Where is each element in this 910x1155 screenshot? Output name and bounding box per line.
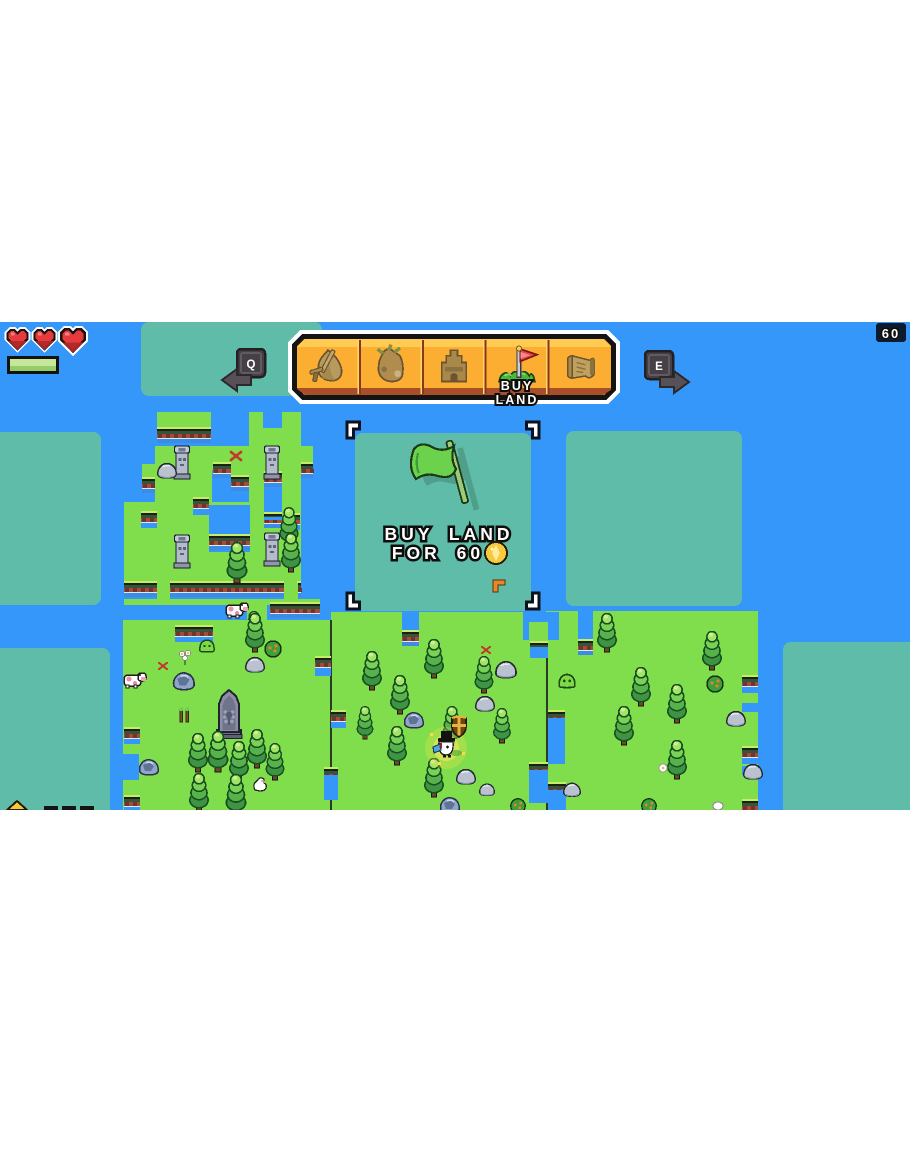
svg-text:BUY LAND: BUY LAND	[384, 524, 513, 544]
svg-text:BUY: BUY	[501, 379, 533, 393]
svg-text:E: E	[655, 361, 663, 373]
svg-text:60: 60	[882, 326, 900, 341]
svg-text:FOR 60: FOR 60	[392, 543, 484, 563]
svg-text:Q: Q	[247, 359, 256, 371]
svg-text:LAND: LAND	[496, 393, 539, 407]
